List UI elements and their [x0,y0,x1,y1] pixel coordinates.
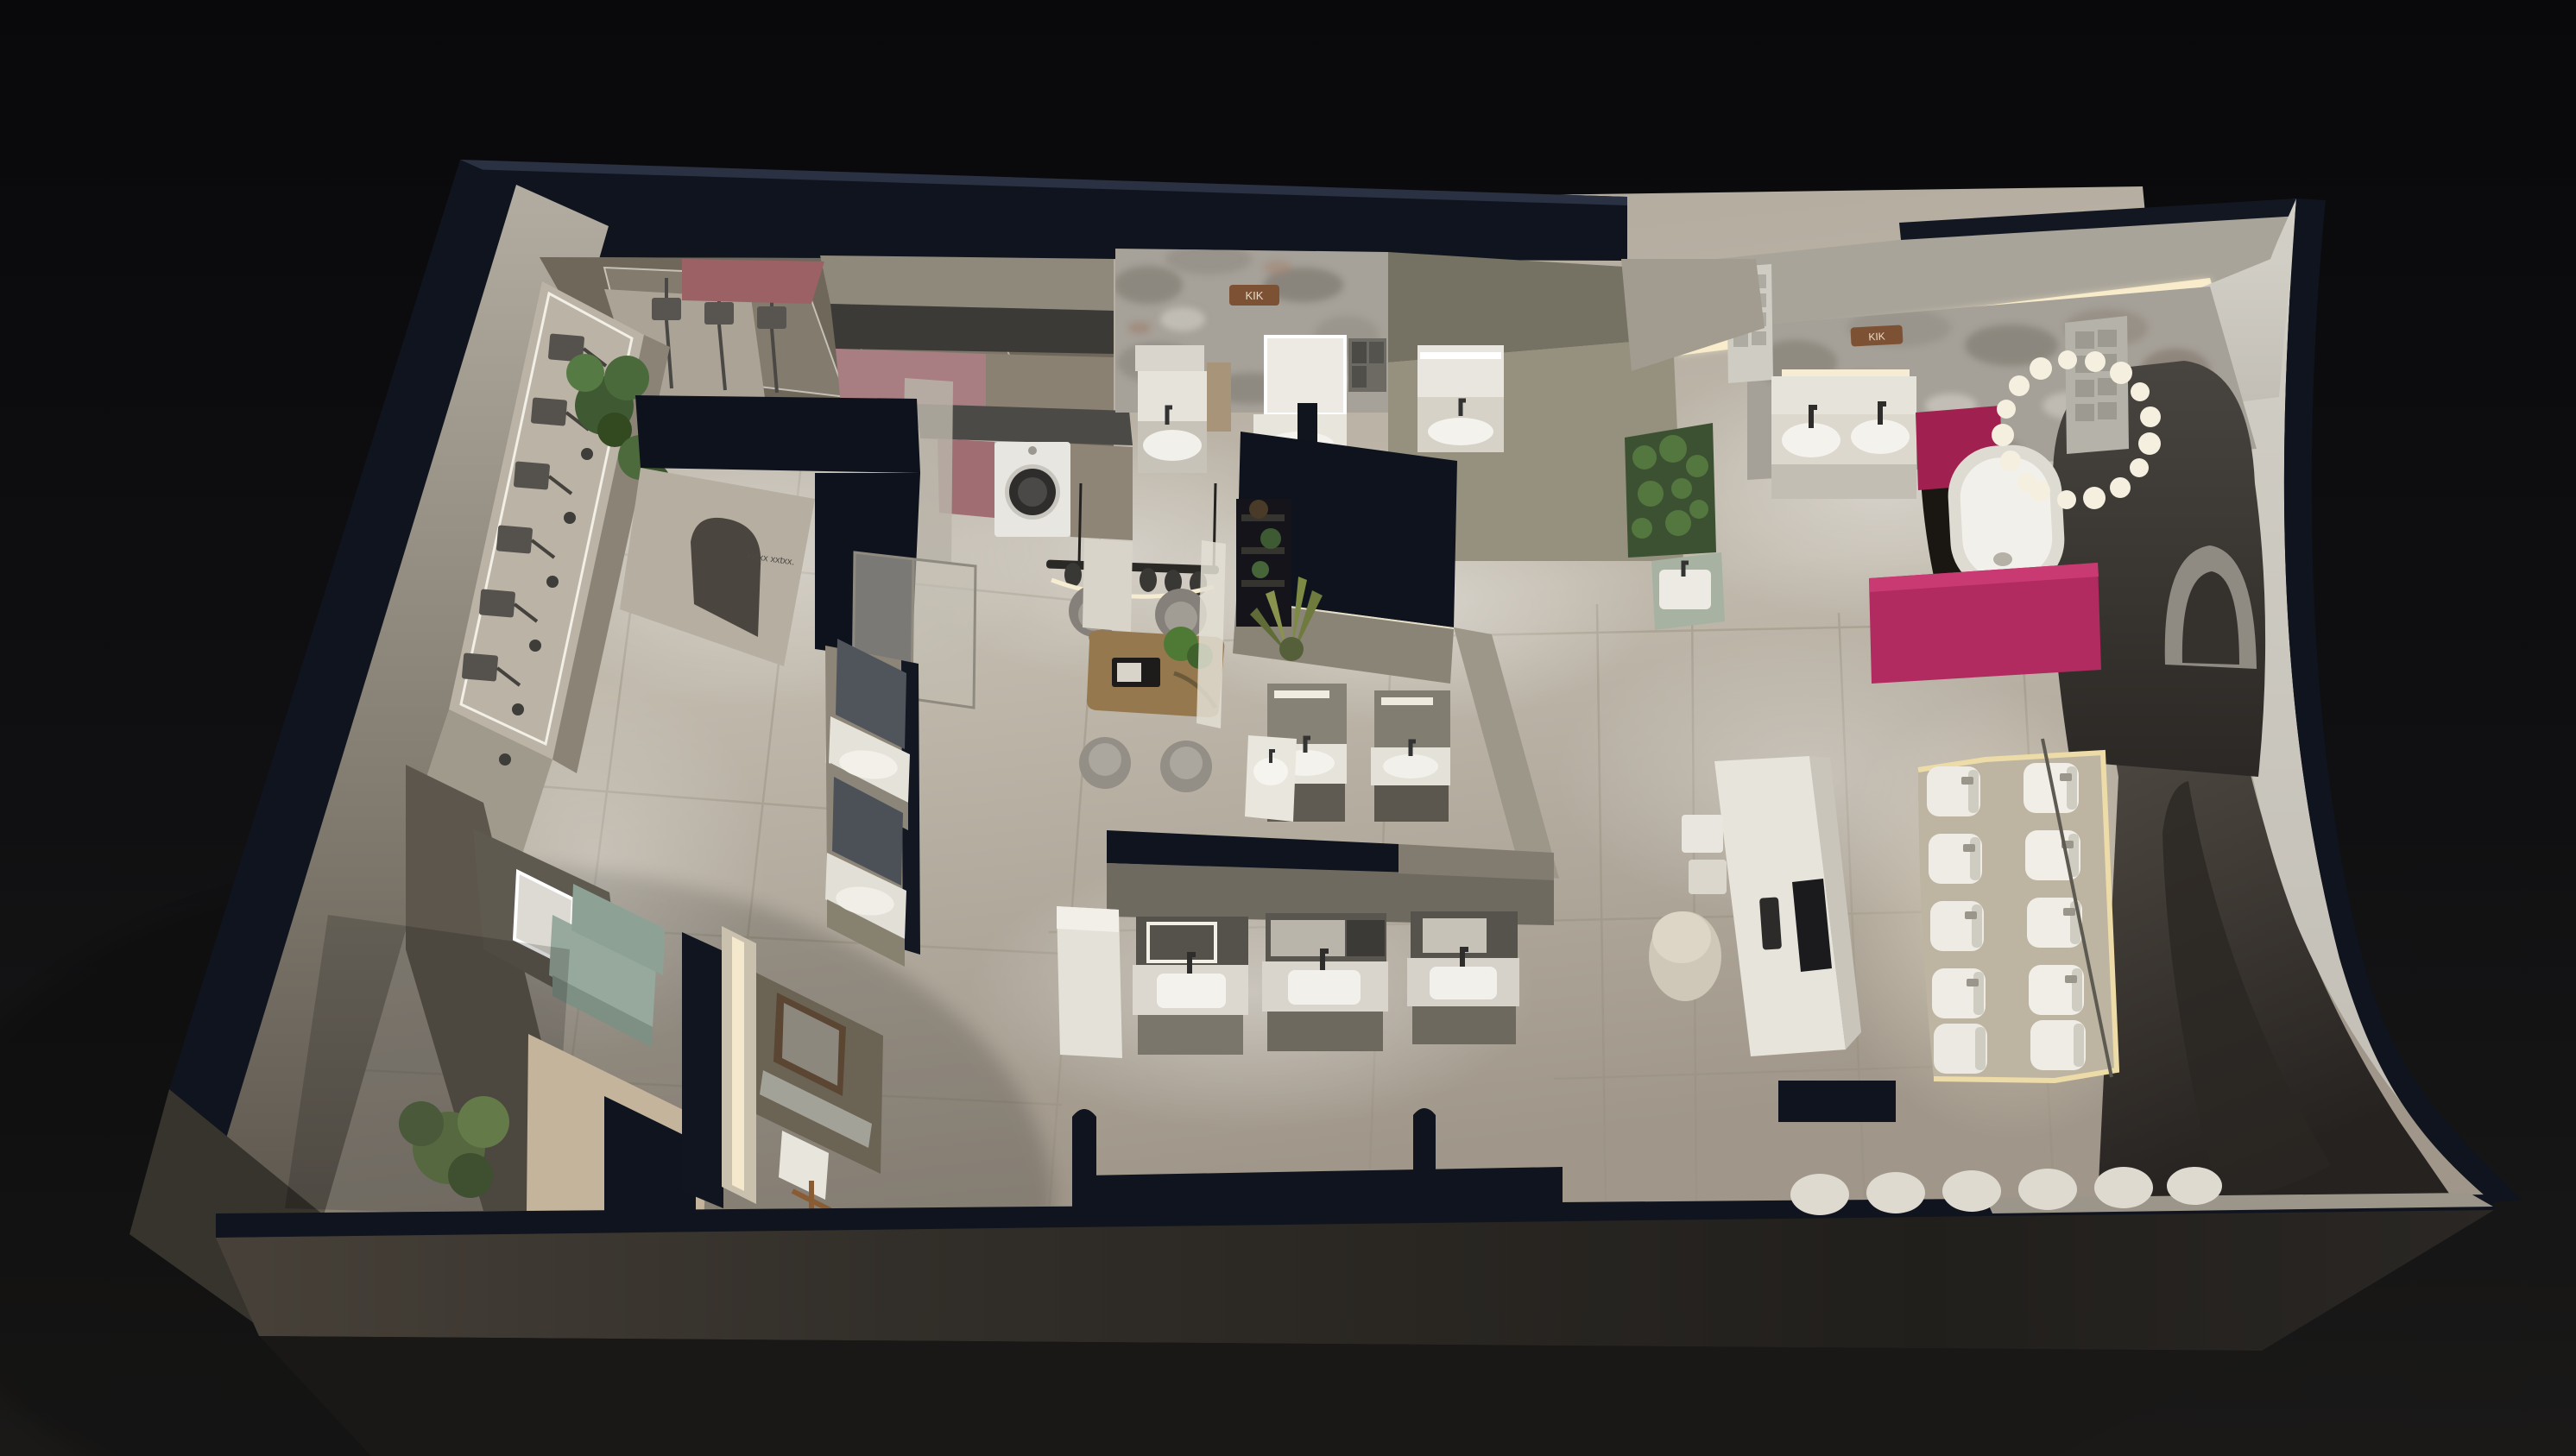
svg-text:KIK: KIK [1868,331,1885,344]
svg-text:KIK: KIK [1246,289,1264,302]
